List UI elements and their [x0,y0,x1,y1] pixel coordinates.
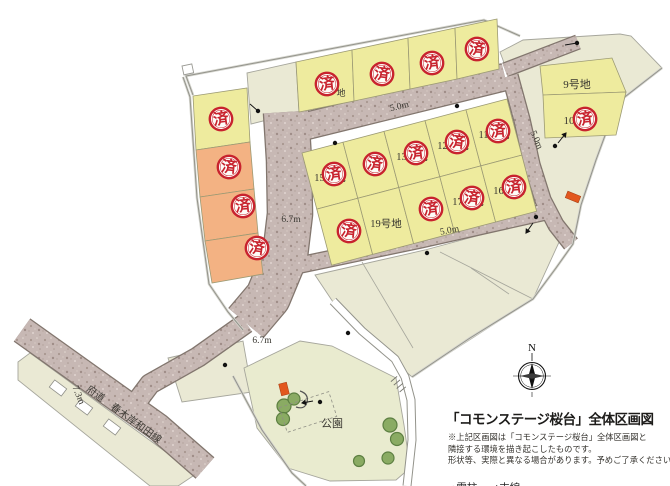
utility-pole-icon [256,109,260,113]
sold-stamp: 済 [460,186,485,211]
sold-stamp-text: 済 [340,220,358,241]
sold-stamp-text: 済 [212,108,230,129]
sold-stamp-text: 済 [325,163,343,184]
sold-stamp-text: 済 [373,63,391,84]
sold-stamp-text: 済 [220,156,238,177]
title-block: N 「コモンステージ桜台」全体区画図 ※上記区画図は「コモンステージ桜台」全体区… [444,340,670,486]
sold-stamp-text: 済 [448,131,466,152]
utility-pole-icon [346,331,350,335]
sold-stamp-text: 済 [248,237,266,258]
page-title: 「コモンステージ桜台」全体区画図 [446,408,670,428]
map-label: 6.7m [281,215,301,225]
sold-stamp-text: 済 [407,142,425,163]
note-line: 隣接する環境を描き起こしたものです。 [448,444,670,456]
utility-pole-icon [575,41,579,45]
tree [391,433,404,446]
boundary-notch [182,64,194,75]
utility-pole-icon [318,400,322,404]
note-line: ※上記区画図は「コモンステージ桜台」全体区画図と [448,432,670,444]
sold-stamp: 済 [486,119,510,143]
sold-stamp: 済 [445,130,470,155]
sold-stamp: 済 [337,219,362,244]
sold-stamp-text: 済 [366,153,384,174]
utility-pole-icon [425,251,429,255]
sold-stamp: 済 [315,72,340,97]
sold-stamp: 済 [419,197,444,222]
plot-map-page: 9号地10号地15号地13号地12号地11号地19号地17号地16号地5.0m5… [0,0,670,486]
disclaimer-notes: ※上記区画図は「コモンステージ桜台」全体区画図と 隣接する環境を描き起こしたもの… [448,432,670,467]
tree [288,393,300,405]
sold-stamp: 済 [217,155,242,180]
tree [382,452,394,464]
sold-stamp-text: 済 [423,52,441,73]
sold-stamp: 済 [465,37,489,61]
sold-stamp-text: 済 [468,38,486,58]
sold-stamp-text: 済 [505,176,523,197]
lot-label: 19号地 [370,217,402,230]
sold-stamp: 済 [502,175,527,200]
sold-stamp: 済 [363,152,388,177]
sold-stamp: 済 [322,162,347,187]
compass-rose: N [504,340,560,402]
compass-north-label: N [528,342,536,354]
utility-pole-icon [333,141,337,145]
utility-pole-icon [223,363,227,367]
tree [383,418,397,432]
sold-stamp-text: 済 [422,198,440,219]
sold-stamp-text: 済 [489,120,507,140]
utility-pole-icon [534,215,538,219]
note-line: 形状等、実際と異なる場合があります。予めご了承ください。 [448,455,670,467]
map-legend: ●電柱 ↑支線 [450,480,670,486]
utility-pole-icon [455,104,459,108]
sold-stamp-text: 済 [234,195,252,215]
lot-label: 9号地 [563,78,591,91]
sold-stamp: 済 [420,51,445,76]
sold-stamp-text: 済 [576,108,594,129]
tree [354,456,365,467]
map-label: 6.7m [252,336,272,346]
sold-stamp-text: 済 [463,187,481,208]
sold-stamp: 済 [370,62,395,87]
sold-stamp: 済 [231,194,255,218]
sold-stamp: 済 [404,141,429,166]
sold-stamp-text: 済 [318,73,336,94]
map-label: 公園 [321,417,343,430]
utility-pole-icon [553,144,557,148]
